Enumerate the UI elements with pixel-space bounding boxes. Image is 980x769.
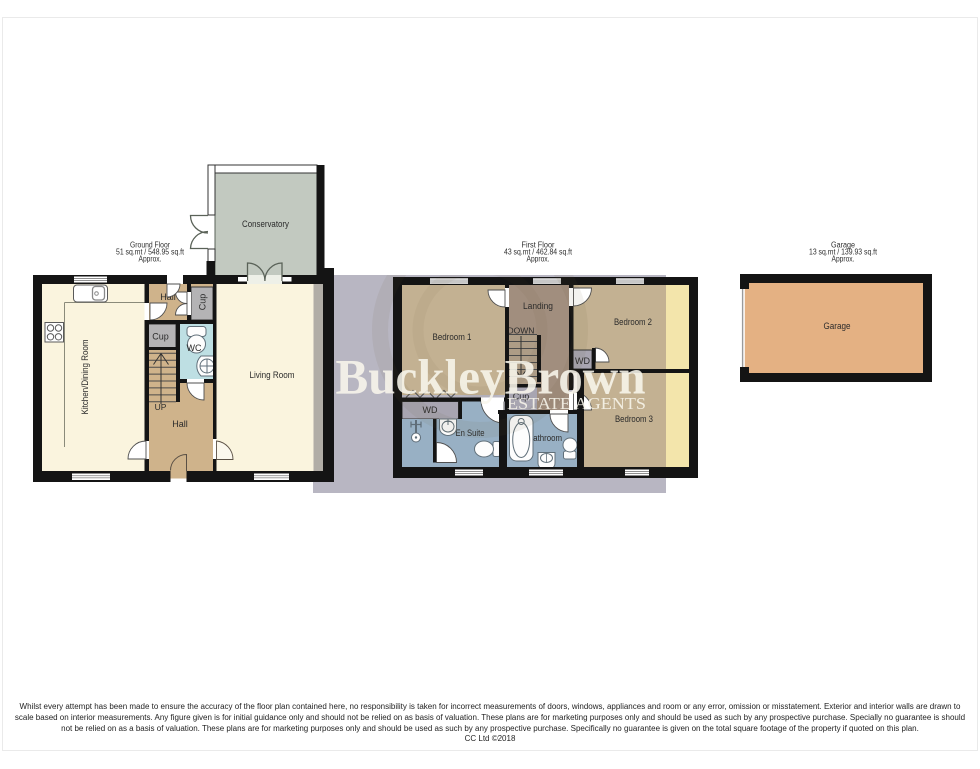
svg-text:Approx.: Approx. — [139, 255, 162, 264]
svg-text:Hall: Hall — [172, 419, 188, 429]
svg-text:Living Room: Living Room — [250, 370, 295, 380]
svg-text:Kitchen/Dining Room: Kitchen/Dining Room — [80, 340, 90, 415]
svg-text:Cup: Cup — [198, 294, 208, 311]
svg-text:Bedroom 3: Bedroom 3 — [615, 414, 653, 424]
svg-text:UP: UP — [155, 402, 167, 412]
svg-text:WC: WC — [187, 343, 202, 353]
svg-text:DOWN: DOWN — [508, 326, 535, 336]
svg-text:Bedroom 2: Bedroom 2 — [614, 317, 652, 327]
svg-text:Bedroom 1: Bedroom 1 — [433, 332, 472, 342]
svg-text:Conservatory: Conservatory — [242, 219, 289, 229]
svg-text:Whilst every attempt has been: Whilst every attempt has been made to en… — [20, 702, 961, 711]
svg-text:Garage: Garage — [824, 321, 851, 331]
svg-text:Approx.: Approx. — [832, 255, 855, 264]
svg-text:Approx.: Approx. — [527, 255, 550, 264]
svg-text:CC Ltd ©2018: CC Ltd ©2018 — [465, 734, 516, 743]
svg-text:ESTATE AGENTS: ESTATE AGENTS — [507, 394, 646, 413]
svg-text:Cup: Cup — [152, 332, 169, 342]
svg-text:scale based on interior measur: scale based on interior measurements. An… — [15, 713, 965, 722]
svg-text:not be relied on as a basis of: not be relied on as a basis of valuation… — [61, 724, 919, 733]
